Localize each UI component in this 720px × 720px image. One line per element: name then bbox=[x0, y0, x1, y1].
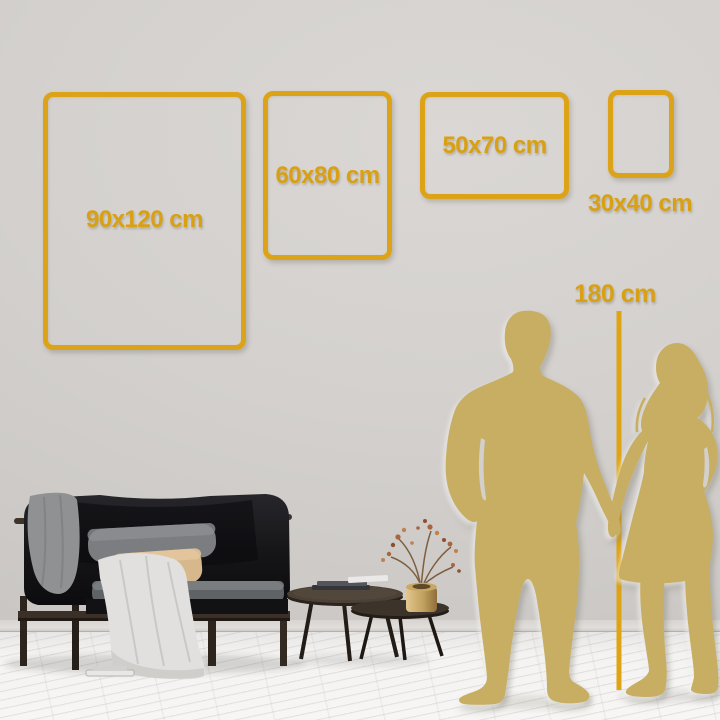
sofa-photo bbox=[14, 493, 292, 679]
brass-vase bbox=[406, 583, 437, 612]
size-label-90x120: 90x120 cm bbox=[43, 206, 246, 234]
poster-size-comparison-visual: 90x120 cm 60x80 cm 50x70 cm 30x40 cm 180… bbox=[0, 0, 720, 720]
couple-silhouette bbox=[446, 311, 719, 705]
height-reference-label: 180 cm bbox=[555, 280, 675, 309]
woman-silhouette bbox=[608, 343, 717, 583]
size-label-50x70: 50x70 cm bbox=[420, 132, 569, 160]
woman-front-leg bbox=[626, 571, 667, 697]
floor-book bbox=[86, 666, 134, 676]
man-silhouette bbox=[446, 311, 621, 705]
floor-shadows bbox=[5, 654, 720, 709]
coffee-tables-photo bbox=[287, 519, 461, 661]
woman-back-leg bbox=[685, 565, 718, 694]
size-label-60x80: 60x80 cm bbox=[263, 162, 392, 190]
dried-flowers bbox=[381, 519, 461, 573]
size-label-30x40: 30x40 cm bbox=[575, 190, 705, 218]
size-frame-30x40 bbox=[608, 90, 674, 178]
